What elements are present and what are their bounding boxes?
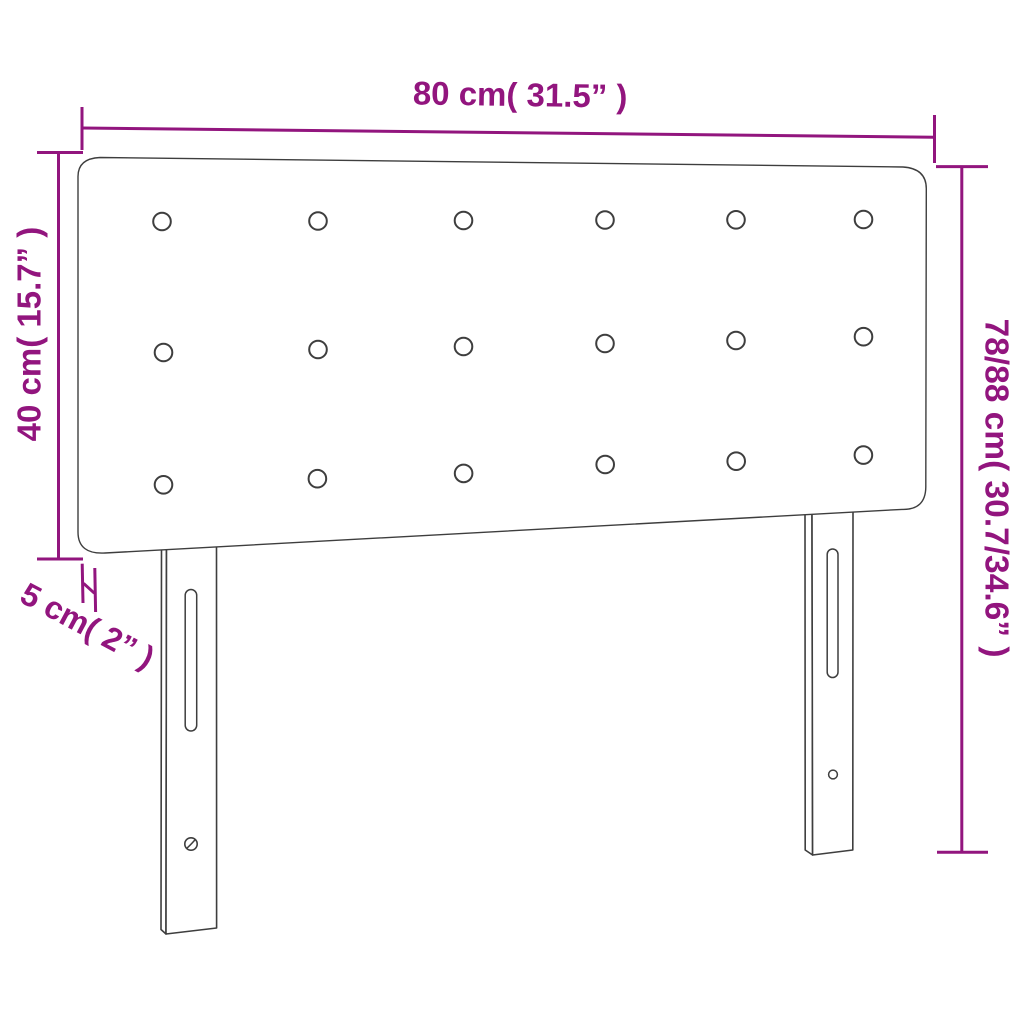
svg-text:80 cm( 31.5” ): 80 cm( 31.5” ) — [413, 74, 628, 114]
svg-text:40 cm( 15.7” ): 40 cm( 15.7” ) — [11, 227, 48, 442]
svg-text:78/88 cm( 30.7/34.6” ): 78/88 cm( 30.7/34.6” ) — [977, 319, 1014, 658]
